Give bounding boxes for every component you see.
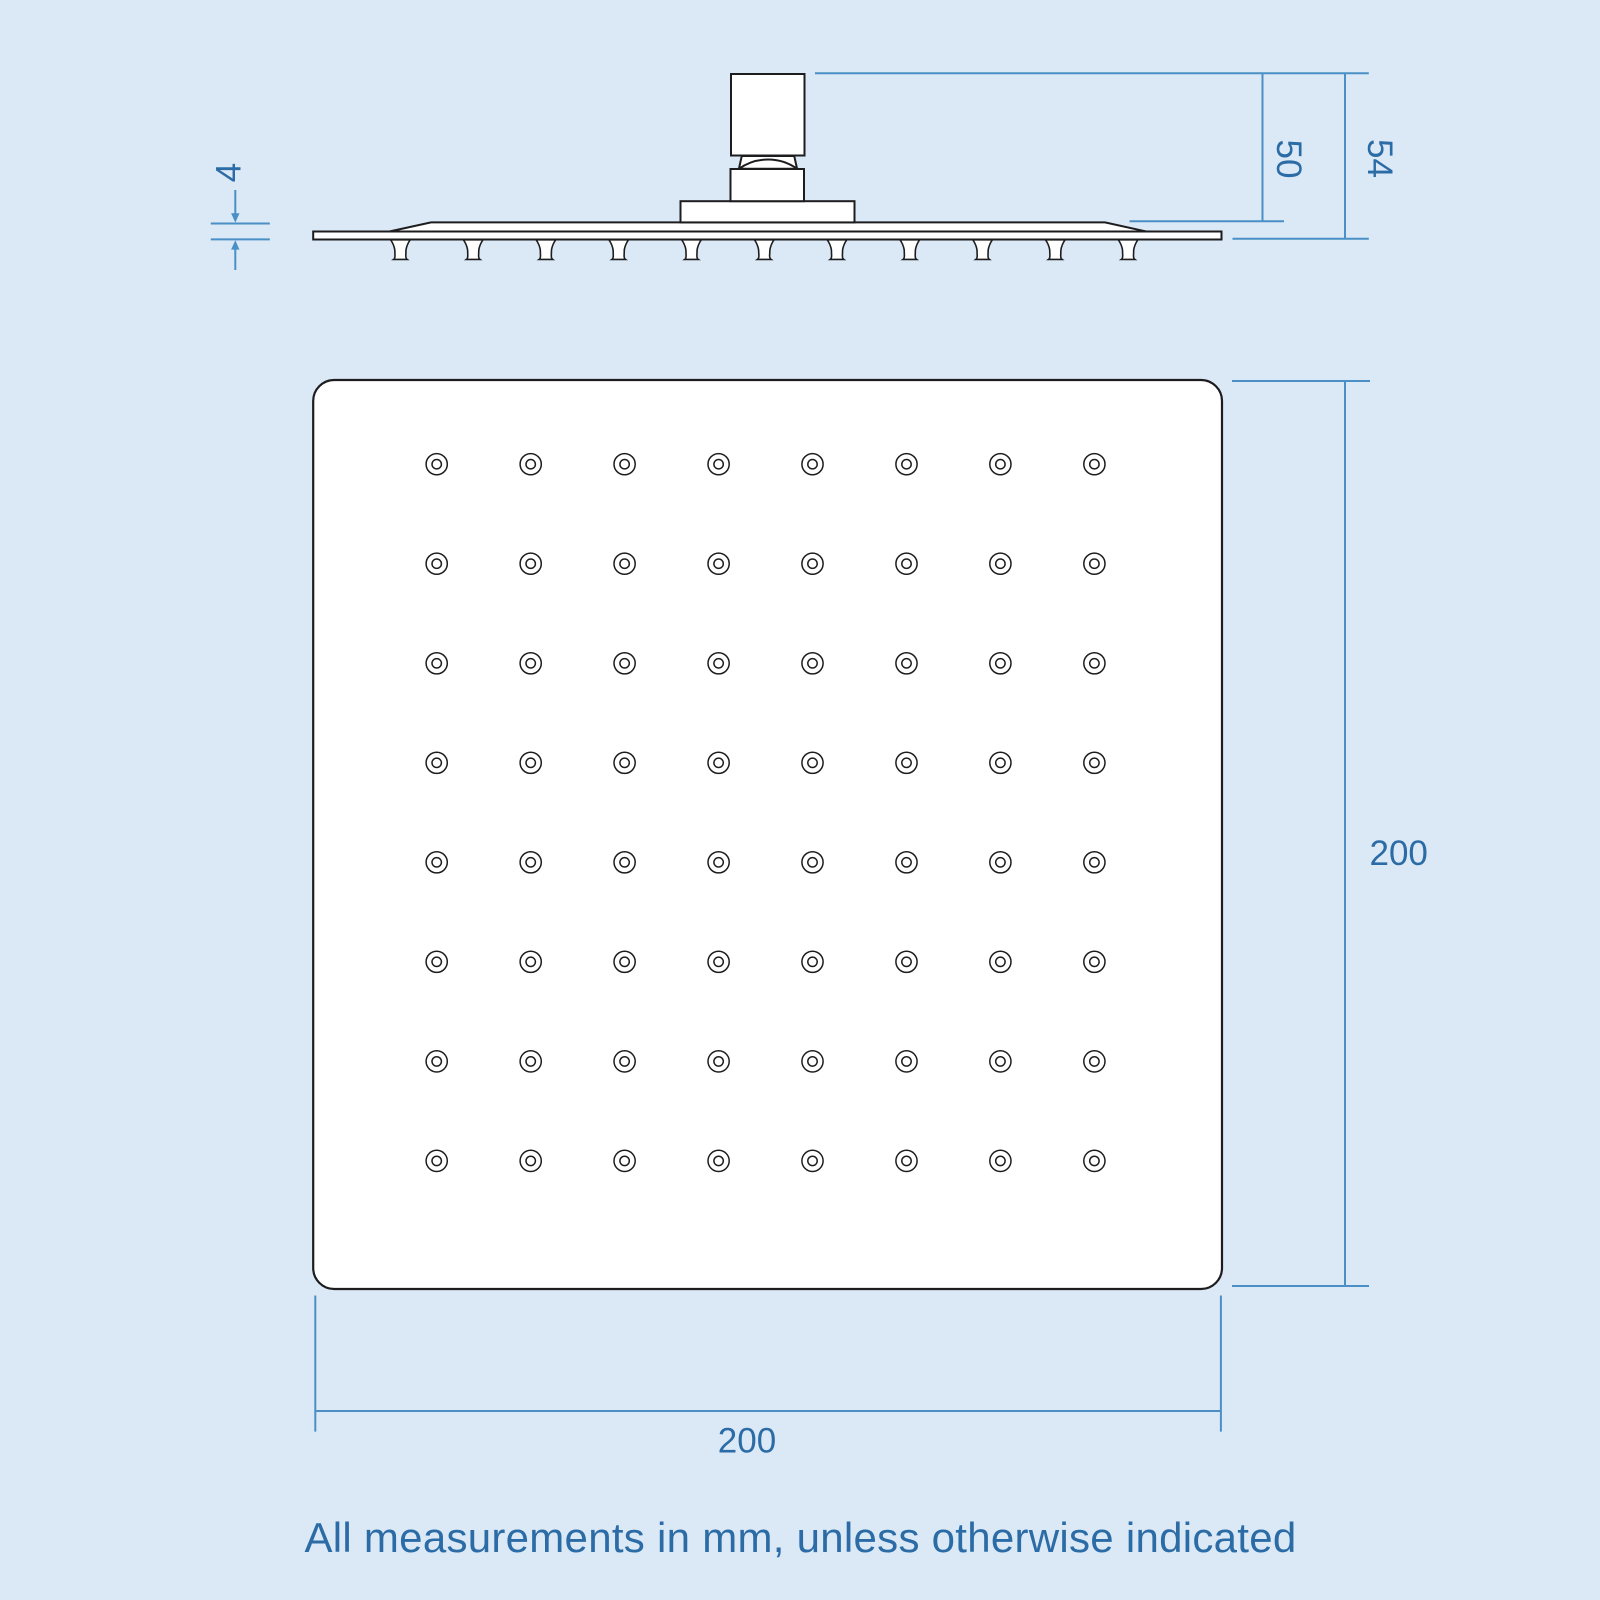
svg-text:All measurements in mm, unless: All measurements in mm, unless otherwise… <box>304 1514 1296 1561</box>
svg-text:200: 200 <box>1370 834 1428 873</box>
svg-text:200: 200 <box>718 1422 776 1461</box>
svg-text:54: 54 <box>1360 139 1399 178</box>
svg-text:50: 50 <box>1269 140 1308 179</box>
svg-text:4: 4 <box>209 163 248 182</box>
